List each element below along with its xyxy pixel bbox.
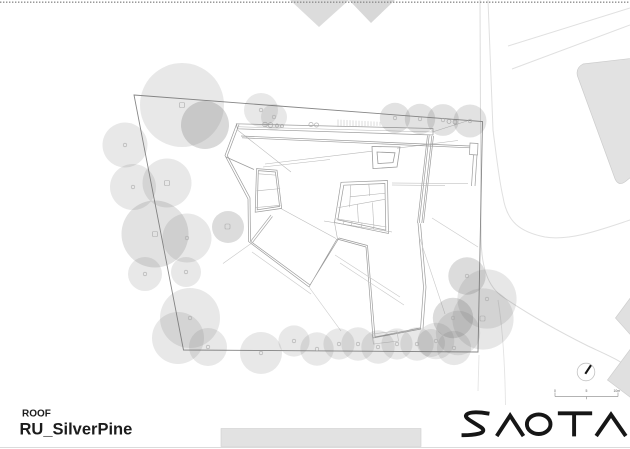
svg-text:ROOF: ROOF	[22, 409, 51, 420]
svg-text:10m: 10m	[614, 389, 621, 393]
svg-text:5: 5	[586, 389, 588, 393]
svg-text:0: 0	[554, 389, 556, 393]
svg-text:RU_SilverPine: RU_SilverPine	[20, 421, 133, 439]
